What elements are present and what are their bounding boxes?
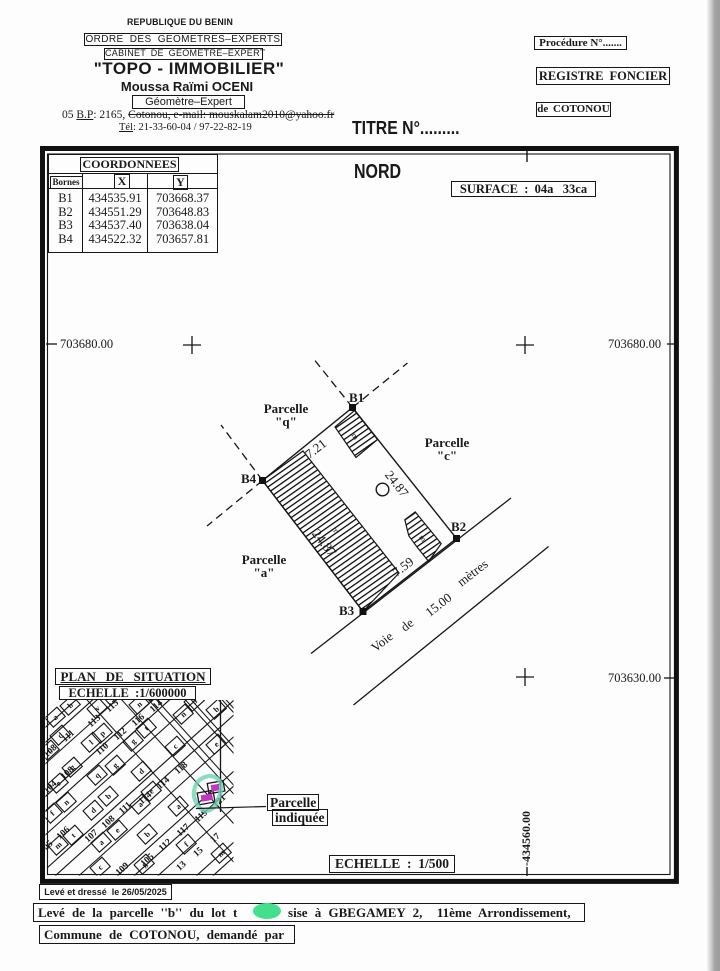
- svg-text:17: 17: [209, 831, 223, 845]
- svg-text:Voie: Voie: [368, 628, 396, 654]
- svg-text:a: a: [97, 838, 106, 847]
- svg-text:15: 15: [192, 845, 206, 859]
- svg-text:118: 118: [173, 760, 190, 777]
- svg-text:p: p: [98, 728, 108, 738]
- svg-text:-434560.00: -434560.00: [519, 811, 533, 866]
- svg-text:mètres: mètres: [454, 556, 491, 589]
- svg-text:e: e: [212, 740, 221, 749]
- svg-text:t: t: [142, 724, 150, 733]
- svg-text:c: c: [96, 863, 105, 872]
- svg-text:15.00: 15.00: [422, 590, 454, 620]
- svg-text:l: l: [87, 738, 95, 747]
- svg-text:111: 111: [60, 728, 77, 744]
- svg-text:b: b: [104, 791, 114, 801]
- svg-text:106: 106: [55, 825, 72, 842]
- svg-text:e: e: [113, 826, 122, 835]
- svg-text:a: a: [174, 802, 183, 811]
- svg-text:q: q: [93, 770, 103, 780]
- svg-text:13: 13: [175, 859, 189, 873]
- svg-text:n: n: [135, 699, 145, 709]
- svg-text:g: g: [129, 737, 138, 746]
- svg-text:f: f: [48, 809, 56, 818]
- svg-text:d: d: [89, 805, 99, 815]
- svg-text:f: f: [182, 840, 190, 849]
- svg-text:de: de: [397, 615, 416, 635]
- svg-text:d: d: [137, 766, 147, 776]
- svg-text:109: 109: [114, 861, 131, 878]
- svg-text:112: 112: [112, 726, 129, 743]
- svg-text:b: b: [143, 829, 153, 839]
- svg-text:n: n: [62, 797, 72, 807]
- svg-text:112: 112: [157, 837, 174, 854]
- svg-text:v: v: [93, 704, 102, 713]
